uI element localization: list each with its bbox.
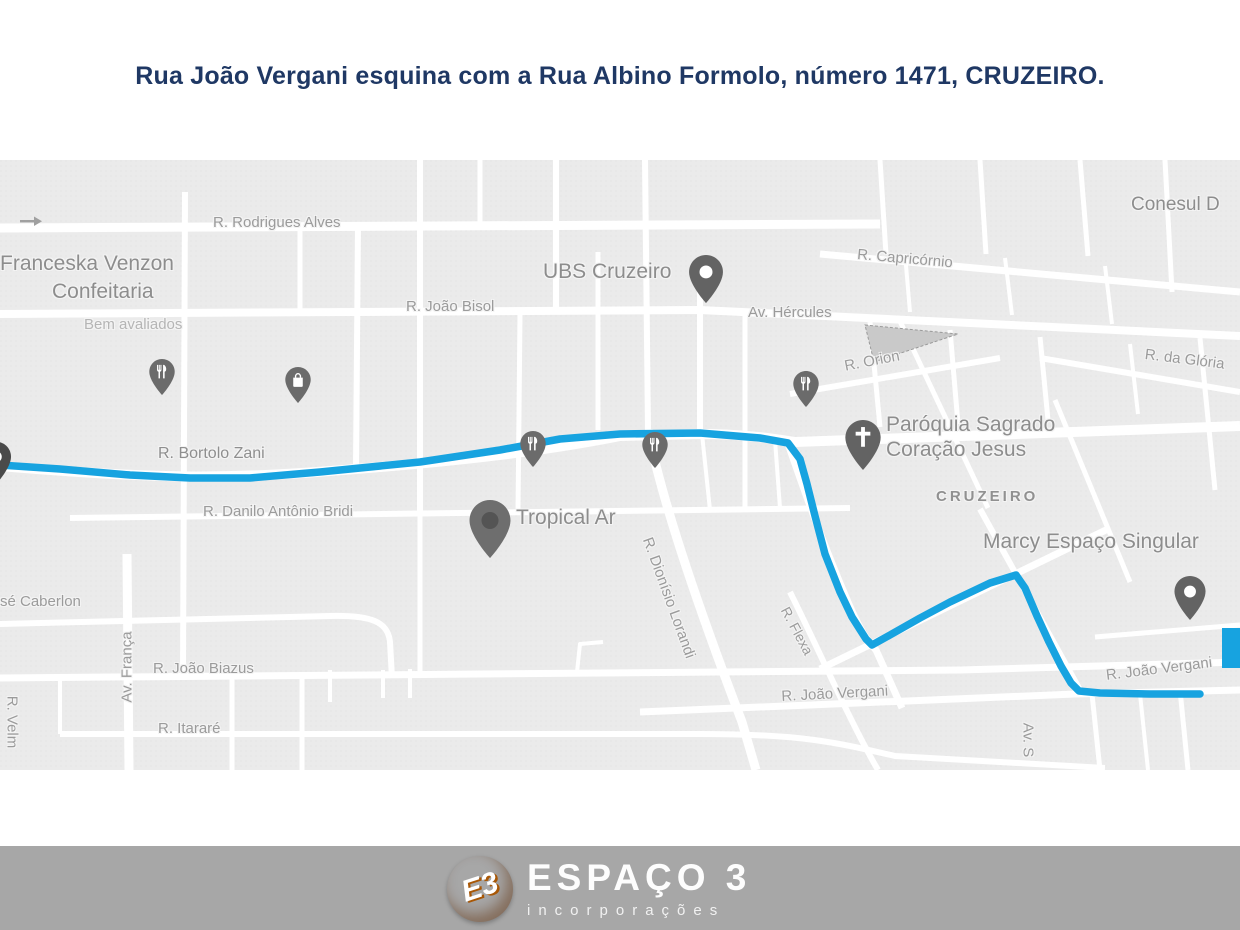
slide: Rua João Vergani esquina com a Rua Albin… — [0, 0, 1240, 930]
street-label-joao-bisol: R. João Bisol — [406, 298, 494, 315]
street-label-bortolo-zani: R. Bortolo Zani — [158, 445, 265, 463]
espaco3-logo: E3 ESPAÇO 3 incorporações — [447, 856, 751, 922]
poi-label-ubs-cruzeiro: UBS Cruzeiro — [543, 260, 671, 284]
restaurant-pin-icon — [793, 371, 819, 407]
poi-label-paroquia-line2: Coração Jesus — [886, 438, 1026, 462]
street-label-joao-biazus: R. João Biazus — [153, 660, 254, 677]
church-pin-icon — [845, 420, 881, 470]
street-label-av-franca: Av. França — [119, 631, 136, 702]
brand-name: ESPAÇO 3 — [527, 859, 751, 896]
shopping-pin-icon — [285, 367, 311, 403]
brand-tagline: incorporações — [527, 902, 751, 919]
tropical-ar-place-pin-icon — [469, 500, 511, 558]
poi-label-franceska-line1: Franceska Venzon — [0, 252, 174, 276]
espaco3-sphere-icon: E3 — [447, 856, 513, 922]
route-start-pin-icon — [0, 441, 11, 485]
street-label-danilo-bridi: R. Danilo Antônio Bridi — [203, 503, 353, 520]
restaurant-pin-icon — [520, 431, 546, 467]
street-label-velm: R. Velm — [4, 696, 21, 749]
espaco3-monogram: E3 — [457, 866, 502, 910]
restaurant-pin-icon — [642, 432, 668, 468]
footer-band: E3 ESPAÇO 3 incorporações — [0, 846, 1240, 930]
poi-label-conesul: Conesul D — [1131, 194, 1220, 216]
poi-label-marcy: Marcy Espaço Singular — [983, 530, 1199, 554]
poi-label-franceska-line2: Confeitaria — [52, 280, 154, 304]
poi-label-paroquia-line1: Paróquia Sagrado — [886, 413, 1055, 437]
street-label-caberlon: sé Caberlon — [0, 593, 81, 610]
street-label-av-hercules: Av. Hércules — [748, 304, 832, 321]
street-label-itarare: R. Itararé — [158, 720, 221, 737]
street-label-av-s: Av. S — [1020, 723, 1037, 757]
ubs-place-pin-icon — [689, 255, 723, 303]
poi-label-tropical-ar: Tropical Ar — [516, 506, 616, 530]
restaurant-pin-icon — [149, 359, 175, 395]
street-label-rodrigues-alves: R. Rodrigues Alves — [213, 214, 341, 231]
page-title: Rua João Vergani esquina com a Rua Albin… — [0, 62, 1240, 91]
marcy-place-pin-icon — [1174, 576, 1206, 620]
map-streets — [0, 160, 1240, 770]
neighborhood-label-cruzeiro: CRUZEIRO — [936, 488, 1038, 505]
poi-label-franceska-subtitle: Bem avaliados — [84, 316, 182, 333]
map-canvas: R. Rodrigues Alves R. João Bisol Av. Hér… — [0, 160, 1240, 770]
route-destination-marker — [1222, 628, 1240, 668]
